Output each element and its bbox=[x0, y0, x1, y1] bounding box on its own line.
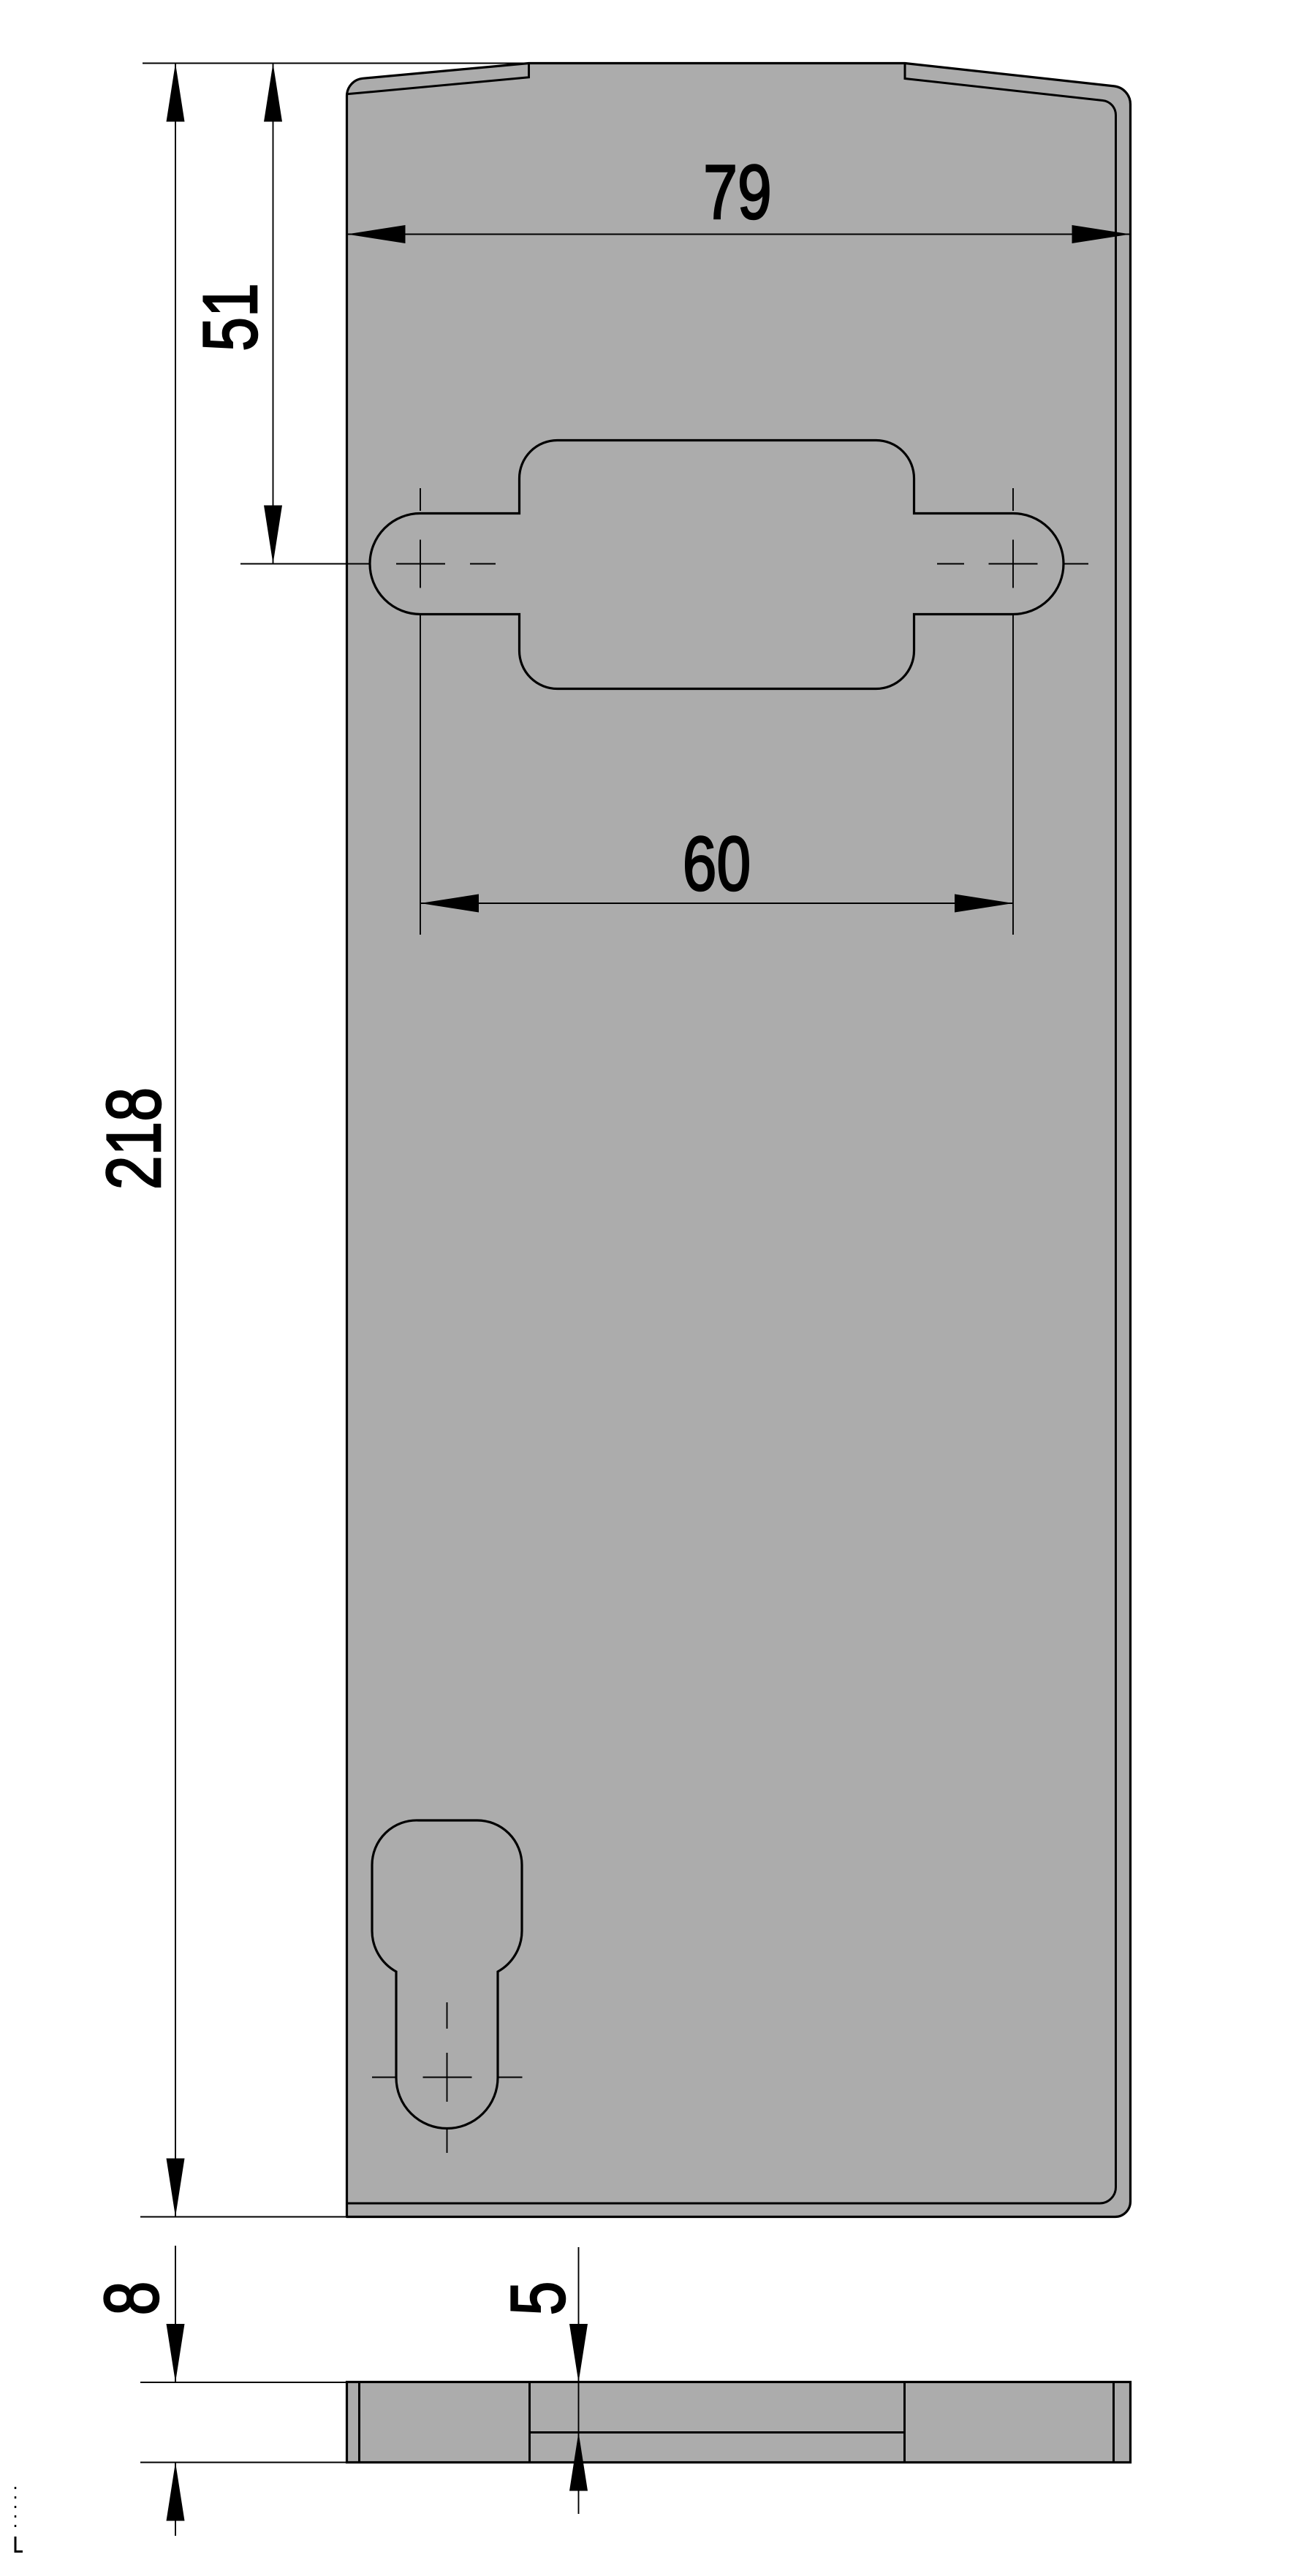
svg-text:8: 8 bbox=[89, 2281, 175, 2316]
svg-text:218: 218 bbox=[91, 1087, 177, 1190]
svg-text:60: 60 bbox=[683, 821, 751, 907]
svg-text:79: 79 bbox=[703, 150, 771, 235]
svg-text:5: 5 bbox=[496, 2281, 581, 2316]
svg-text:51: 51 bbox=[188, 283, 273, 351]
